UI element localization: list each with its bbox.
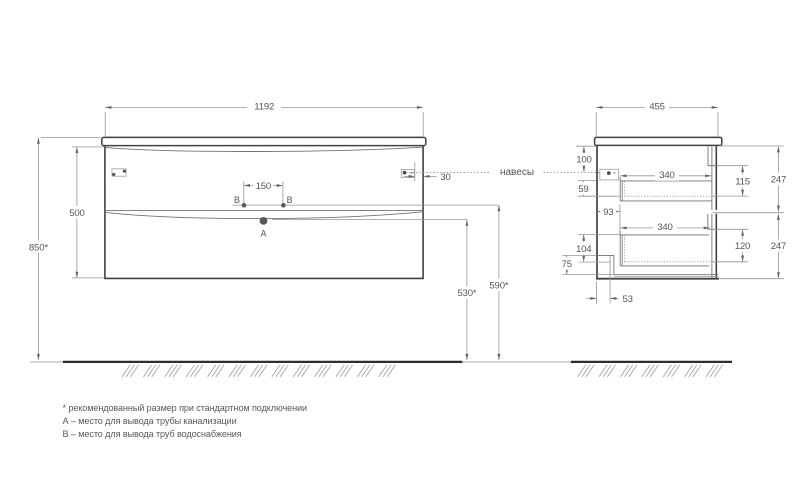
svg-text:340: 340 (659, 170, 674, 181)
svg-text:100: 100 (576, 155, 591, 166)
svg-text:53: 53 (622, 294, 632, 305)
svg-text:* рекомендованный размер при с: * рекомендованный размер при стандартном… (63, 403, 307, 413)
svg-text:В – место для вывода труб водо: В – место для вывода труб водоснабжения (63, 429, 242, 439)
svg-text:B: B (287, 195, 293, 205)
svg-text:104: 104 (576, 244, 592, 255)
svg-text:590*: 590* (489, 281, 508, 292)
svg-text:A: A (260, 228, 266, 238)
svg-text:247: 247 (771, 174, 786, 185)
svg-text:340: 340 (657, 222, 672, 233)
svg-text:150: 150 (256, 181, 271, 192)
svg-text:247: 247 (771, 241, 786, 252)
svg-text:850*: 850* (29, 242, 48, 253)
svg-text:75: 75 (562, 259, 572, 270)
svg-text:1192: 1192 (254, 102, 274, 113)
svg-text:530*: 530* (457, 288, 476, 299)
svg-text:93: 93 (603, 207, 613, 218)
svg-text:30: 30 (440, 172, 450, 183)
svg-text:455: 455 (649, 102, 664, 113)
svg-text:59: 59 (578, 184, 588, 195)
svg-text:120: 120 (735, 241, 750, 252)
svg-text:А – место для вывода трубы кан: А – место для вывода трубы канализации (63, 416, 237, 426)
svg-text:B: B (234, 195, 240, 205)
svg-text:навесы: навесы (500, 167, 534, 178)
svg-text:115: 115 (735, 176, 750, 187)
svg-text:500: 500 (69, 208, 84, 219)
